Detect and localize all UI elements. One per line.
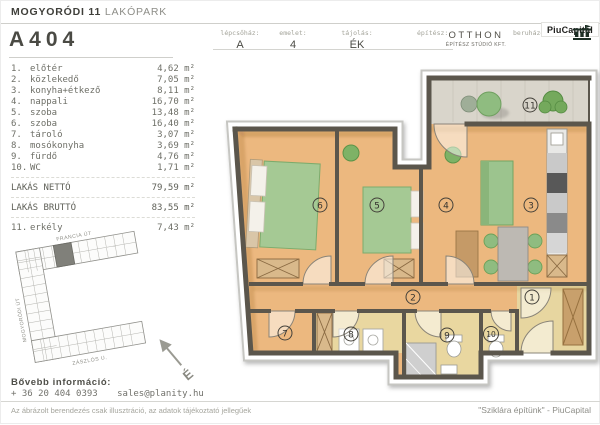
contact-row: + 36 20 404 0393 sales@planity.hu [11, 389, 204, 399]
svg-text:9: 9 [444, 332, 450, 342]
unit-divider [9, 57, 173, 58]
svg-text:4: 4 [443, 202, 449, 212]
net-area-value: 79,59 m² [152, 183, 195, 193]
info-floor: emelet: 4 [267, 29, 319, 51]
piucapital-building-icon [570, 25, 594, 40]
svg-text:7: 7 [282, 330, 288, 340]
svg-text:3: 3 [528, 202, 534, 212]
room-row: 9.fürdő4,76 m² [11, 152, 195, 162]
plant-icon [343, 145, 359, 161]
architect-logo: OTTHON ÉPÍTÉSZ STÚDIÓ KFT. [443, 30, 509, 48]
floor-label: emelet: [267, 29, 319, 37]
room-row: 1.előtér4,62 m² [11, 64, 195, 74]
svg-text:5: 5 [374, 202, 380, 212]
info-staircase: lépcsőház: A [213, 29, 267, 51]
room-row: 3.konyha+étkező8,11 m² [11, 86, 195, 96]
room-row: 7.tároló3,07 m² [11, 130, 195, 140]
room-row: 4.nappali16,70 m² [11, 97, 195, 107]
gross-area-row: LAKÁS BRUTTÓ 83,55 m² [11, 197, 195, 217]
datasheet-page: 1 2 3 4 5 6 7 8 9 10 11 É MOGYORÓDI 11 L… [0, 0, 600, 424]
round-table [477, 92, 501, 116]
svg-text:11: 11 [524, 102, 535, 112]
project-title: MOGYORÓDI 11 LAKÓPARK [11, 6, 167, 18]
footer-slogan: "Sziklára építünk" - PiuCapital [478, 405, 591, 415]
room-row: 2.közlekedő7,05 m² [11, 75, 195, 85]
developer-logo: PiuCapital [541, 22, 599, 37]
svg-text:1: 1 [529, 294, 535, 304]
svg-text:8: 8 [348, 331, 354, 341]
architect-name: OTTHON [443, 30, 509, 41]
disclaimer-text: Az ábrázolt berendezés csak illusztráció… [11, 406, 251, 415]
room-row: 10.WC1,71 m² [11, 163, 195, 173]
staircase-label: lépcsőház: [213, 29, 267, 37]
room-list: 1.előtér4,62 m² 2.közlekedő7,05 m² 3.kon… [11, 64, 195, 174]
site-plan: FRANCIA ÚT MOGYORÓDI ÚT ZÁSZLÓS U. [9, 229, 159, 373]
entry-wardrobe [563, 289, 583, 345]
orientation-label: tájolás: [319, 29, 395, 37]
north-arrow-icon: É [155, 335, 198, 383]
room-row: 8.mosókonyha3,69 m² [11, 141, 195, 151]
contact-email-link[interactable]: sales@planity.hu [117, 389, 204, 399]
bed-double [246, 159, 321, 251]
toilet [447, 341, 461, 357]
contact-heading: Bővebb információ: [11, 377, 111, 388]
unit-id: A404 [9, 28, 79, 52]
svg-text:2: 2 [410, 294, 416, 304]
room-row: 6.szoba16,40 m² [11, 119, 195, 129]
footer-divider [1, 401, 600, 402]
contact-phone: + 36 20 404 0393 [11, 389, 98, 399]
balcony-value: 7,43 m² [157, 223, 195, 233]
gross-area-label: LAKÁS BRUTTÓ [11, 203, 152, 213]
project-title-light: LAKÓPARK [105, 6, 167, 18]
street-label-bottom: ZÁSZLÓS U. [72, 354, 108, 367]
info-orientation: tájolás: ÉK [319, 29, 395, 51]
header-divider [1, 23, 600, 24]
chair [461, 96, 477, 112]
room-row: 5.szoba13,48 m² [11, 108, 195, 118]
svg-text:6: 6 [317, 202, 323, 212]
area-totals: LAKÁS NETTÓ 79,59 m² LAKÁS BRUTTÓ 83,55 … [11, 177, 195, 237]
net-area-row: LAKÁS NETTÓ 79,59 m² [11, 177, 195, 197]
gross-area-value: 83,55 m² [152, 203, 195, 213]
net-area-label: LAKÁS NETTÓ [11, 183, 152, 193]
architect-subtitle: ÉPÍTÉSZ STÚDIÓ KFT. [443, 42, 509, 48]
info-table: lépcsőház: A emelet: 4 tájolás: ÉK [213, 29, 395, 51]
kitchen-counter [547, 129, 567, 277]
project-title-bold: MOGYORÓDI 11 [11, 6, 101, 18]
sofa [481, 161, 513, 225]
dryer [363, 329, 383, 351]
sink [441, 365, 457, 374]
highlighted-building [53, 242, 75, 267]
info-table-divider [213, 49, 453, 50]
wardrobe [257, 259, 299, 278]
svg-text:É: É [180, 366, 197, 383]
svg-text:10: 10 [486, 330, 496, 339]
